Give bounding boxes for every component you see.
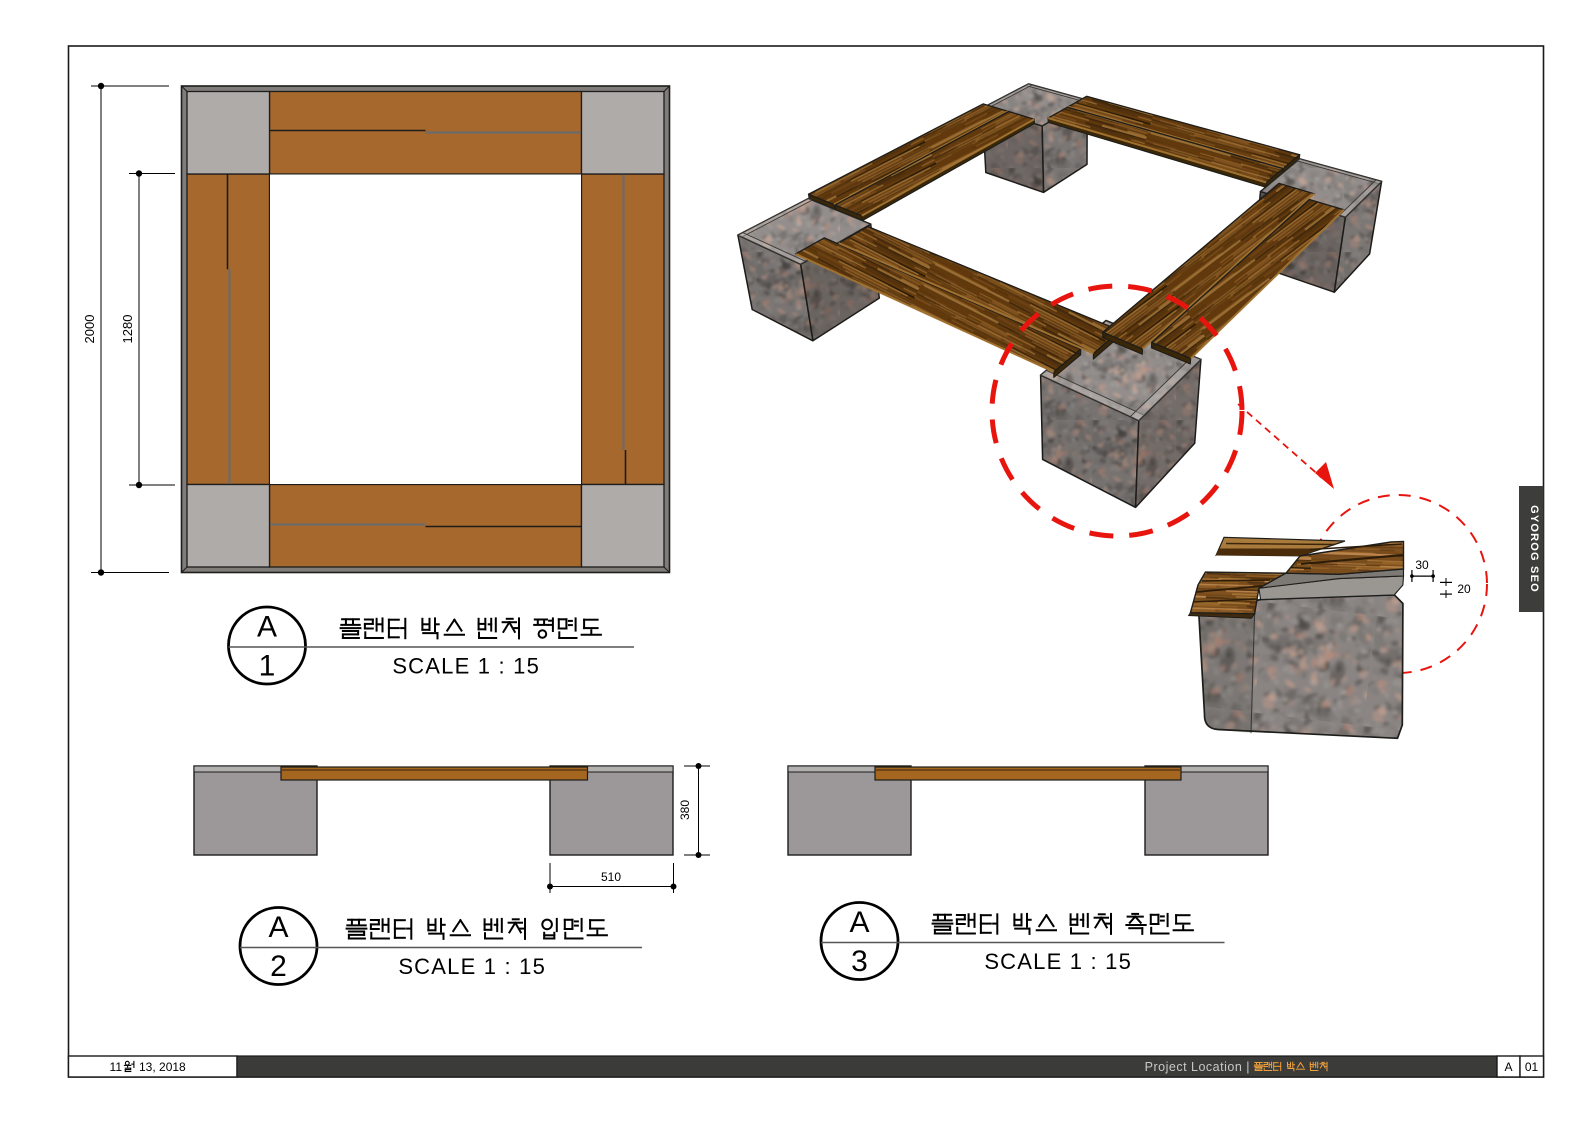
svg-text:2000: 2000 bbox=[82, 315, 97, 344]
svg-text:380: 380 bbox=[678, 800, 692, 820]
svg-text:A: A bbox=[1504, 1060, 1512, 1074]
svg-text:510: 510 bbox=[601, 870, 621, 884]
svg-text:A: A bbox=[849, 906, 869, 939]
svg-text:SCALE 1 : 15: SCALE 1 : 15 bbox=[392, 654, 540, 679]
svg-text:Project Location |: Project Location | bbox=[1145, 1060, 1250, 1074]
svg-text:A: A bbox=[257, 611, 277, 644]
svg-text:SCALE 1 : 15: SCALE 1 : 15 bbox=[398, 954, 546, 979]
svg-text:SCALE 1 : 15: SCALE 1 : 15 bbox=[984, 949, 1132, 974]
svg-text:11: 11 bbox=[110, 1060, 123, 1074]
svg-text:20: 20 bbox=[1457, 582, 1471, 596]
svg-text:13, 2018: 13, 2018 bbox=[139, 1060, 186, 1074]
svg-text:30: 30 bbox=[1415, 558, 1429, 572]
svg-text:01: 01 bbox=[1525, 1060, 1539, 1074]
svg-text:1280: 1280 bbox=[120, 315, 135, 344]
svg-text:2: 2 bbox=[270, 950, 287, 983]
svg-text:1: 1 bbox=[259, 650, 276, 683]
svg-text:A: A bbox=[268, 911, 288, 944]
svg-text:3: 3 bbox=[851, 945, 868, 978]
svg-text:GYOROG SEO: GYOROG SEO bbox=[1528, 505, 1540, 593]
